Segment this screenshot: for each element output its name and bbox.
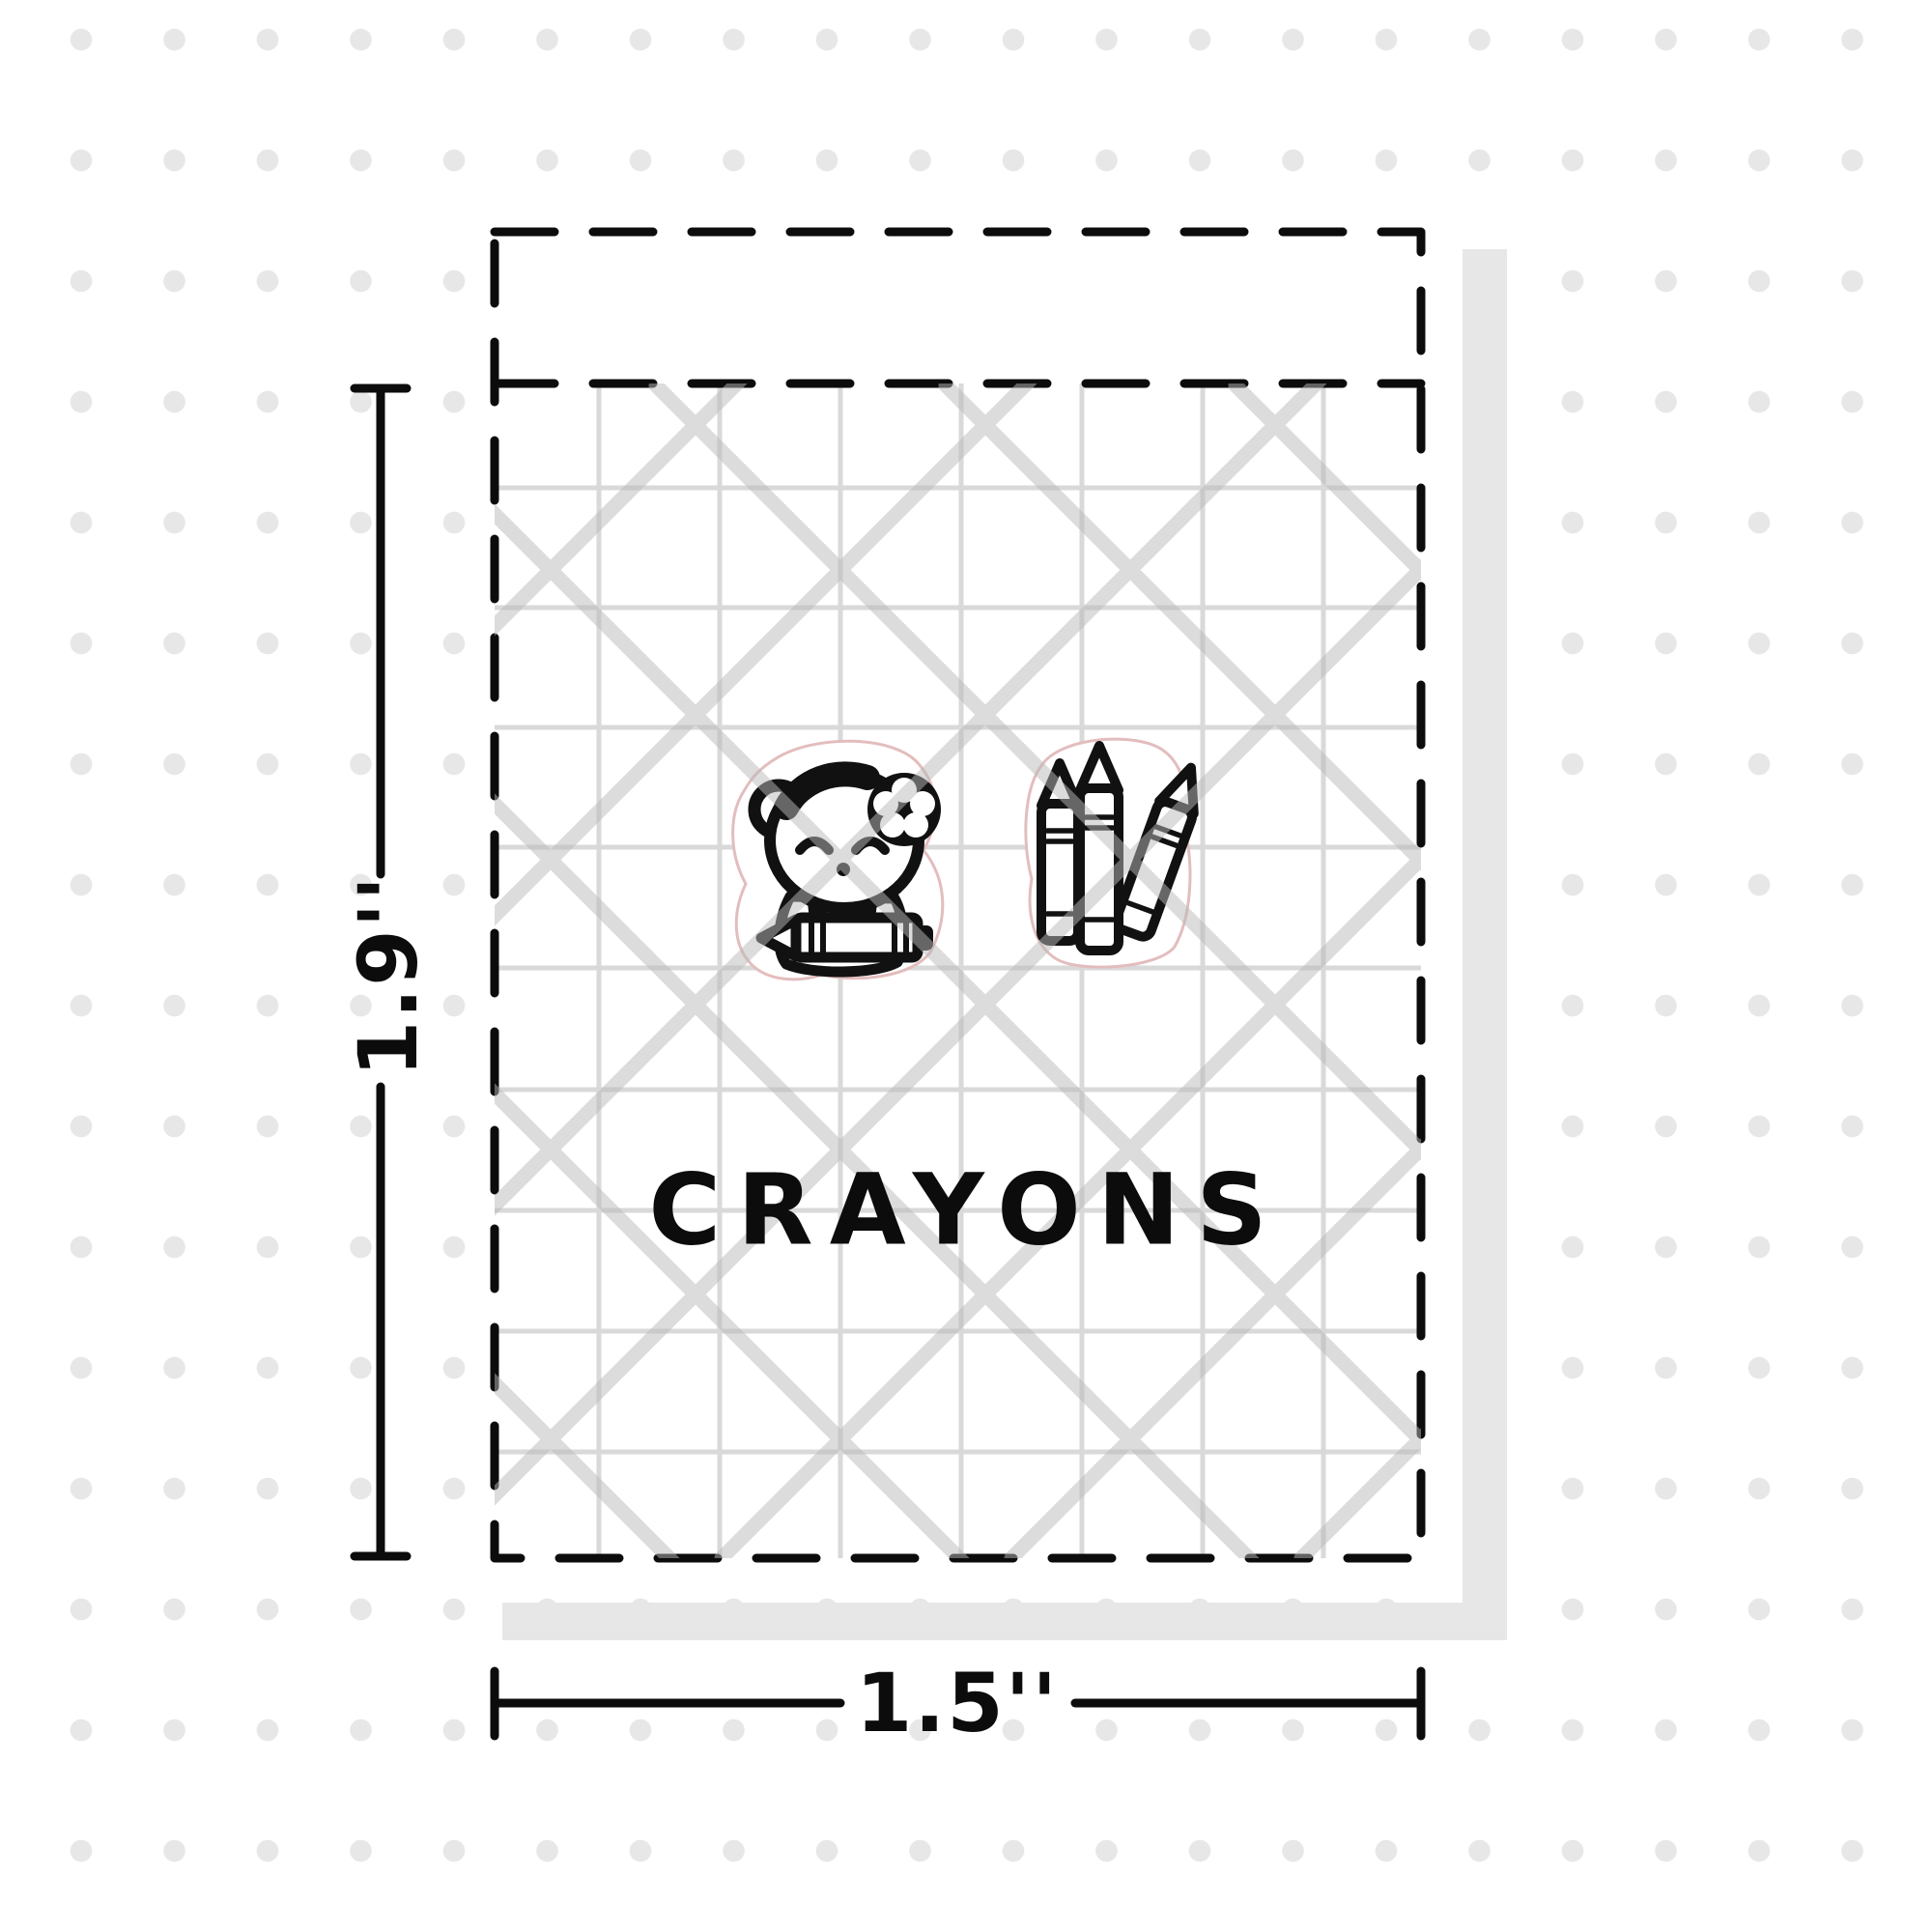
sticker-size-mockup: CRAYONS 1.9'' 1.5'' xyxy=(0,0,1932,1932)
width-dimension: 1.5'' xyxy=(495,1656,1421,1750)
width-dimension-label: 1.5'' xyxy=(856,1656,1059,1750)
height-dimension-label: 1.9'' xyxy=(341,874,436,1077)
bear-flower xyxy=(867,773,941,846)
mockup-canvas: CRAYONS 1.9'' 1.5'' xyxy=(0,0,1932,1932)
height-dimension: 1.9'' xyxy=(341,388,436,1556)
sheet-title: CRAYONS xyxy=(648,1153,1283,1268)
